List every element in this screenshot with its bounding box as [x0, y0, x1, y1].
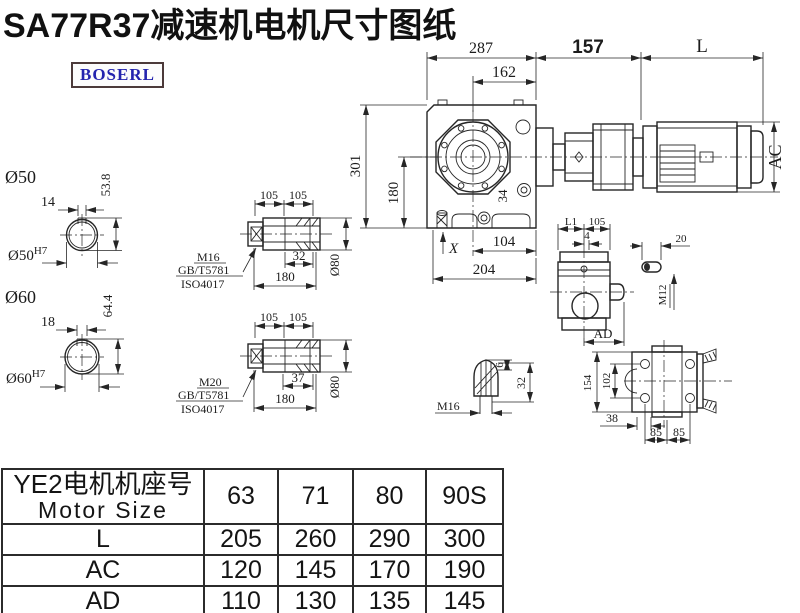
- dim-keywidth-50: 14: [41, 195, 55, 210]
- dim-4: 4: [584, 230, 590, 242]
- hollow-shaft-m16: 105 105 32 180 Ø80 M16 GB/T5781 ISO4017: [176, 188, 352, 291]
- thread-m16-label: M16: [197, 250, 220, 264]
- std-gbt5781-m20: GB/T5781: [178, 388, 229, 402]
- brand-logo: BOSERL: [71, 62, 164, 88]
- dim-85b: 85: [673, 425, 685, 439]
- page-title: SA77R37减速机电机尺寸图纸: [3, 0, 456, 47]
- dim-105a-m20: 105: [260, 310, 278, 324]
- dim-157: 157: [572, 37, 604, 58]
- dim-X: X: [448, 241, 459, 257]
- dim-104: 104: [493, 234, 516, 250]
- dim-dia80-m16: Ø80: [327, 254, 342, 276]
- table-cell: 205: [204, 524, 278, 555]
- dim-180-m16: 180: [275, 269, 295, 284]
- table-col-header: 63: [204, 469, 278, 524]
- key-end: [644, 263, 650, 271]
- dim-180: 180: [386, 182, 402, 205]
- drain-bolt: [437, 211, 447, 229]
- header-en: Motor Size: [3, 498, 203, 522]
- table-header-label: YE2电机机座号 Motor Size: [2, 469, 204, 524]
- table-cell: 120: [204, 555, 278, 586]
- dim-301: 301: [348, 155, 364, 178]
- dim-AD: AD: [594, 326, 613, 341]
- bore-60-section: Ø60 18 64.4 Ø60H7: [5, 287, 124, 392]
- table-cell: 130: [278, 586, 353, 613]
- header-cn: YE2电机机座号: [3, 471, 203, 498]
- bore-50-section: Ø50 14 53.8 Ø50H7: [5, 167, 122, 268]
- motor-size-table: YE2电机机座号 Motor Size 63 71 80 90S L 205 2…: [1, 468, 504, 613]
- table-row: AD 110 130 135 145: [2, 586, 503, 613]
- fit-60H7: Ø60H7: [6, 368, 46, 387]
- table-cell: 290: [353, 524, 426, 555]
- dim-L: L: [696, 36, 708, 57]
- dim-32-plug: 32: [514, 377, 528, 389]
- dim-162: 162: [492, 64, 516, 81]
- dim-keyheight-50: 53.8: [98, 174, 113, 197]
- table-col-header: 90S: [426, 469, 503, 524]
- dim-20-key: 20: [676, 233, 688, 245]
- std-gbt5781-m16: GB/T5781: [178, 263, 229, 277]
- dim-38: 38: [606, 411, 618, 425]
- dim-105b-m16: 105: [289, 188, 307, 202]
- table-cell: 170: [353, 555, 426, 586]
- dim-keywidth-60: 18: [41, 315, 55, 330]
- key-detail: 20 M12: [630, 233, 690, 310]
- row-label: L: [2, 524, 204, 555]
- dim-85a: 85: [650, 425, 662, 439]
- table-col-header: 80: [353, 469, 426, 524]
- dim-keyheight-60: 64.4: [100, 294, 115, 317]
- dim-204: 204: [473, 262, 496, 278]
- row-label: AC: [2, 555, 204, 586]
- table-cell: 145: [278, 555, 353, 586]
- hollow-shaft-m20: 105 105 37 180 Ø80 M20 GB/T5781 ISO4017: [176, 310, 352, 416]
- dim-105b-m20: 105: [289, 310, 307, 324]
- table-cell: 260: [278, 524, 353, 555]
- std-iso4017-m16: ISO4017: [181, 277, 224, 291]
- table-col-header: 71: [278, 469, 353, 524]
- fit-50H7: Ø50H7: [8, 245, 48, 264]
- thread-m20-label: M20: [199, 375, 222, 389]
- gearbox-side-view: L1 105 4 AD: [550, 216, 634, 346]
- table-cell: 300: [426, 524, 503, 555]
- plug-detail: M16 6 32: [435, 360, 534, 414]
- dim-32-m16: 32: [293, 248, 306, 263]
- table-cell: 190: [426, 555, 503, 586]
- dim-102: 102: [601, 373, 613, 390]
- table-cell: 145: [426, 586, 503, 613]
- table-cell: 110: [204, 586, 278, 613]
- std-iso4017-m20: ISO4017: [181, 402, 224, 416]
- bore50-label: Ø50: [5, 167, 36, 187]
- bore60-label: Ø60: [5, 287, 36, 307]
- dim-105-side: 105: [589, 216, 606, 228]
- table-cell: 135: [353, 586, 426, 613]
- dim-105a-m16: 105: [260, 188, 278, 202]
- thread-m12-key: M12: [657, 285, 669, 306]
- dim-180-m20: 180: [275, 391, 295, 406]
- main-assembly-view: 287 162 157 L AC 301 180 34 X 104: [348, 36, 785, 284]
- dim-154: 154: [582, 374, 594, 391]
- dim-37-m20: 37: [292, 370, 306, 385]
- gearbox-bottom-view: 154 102 38 85 85: [582, 340, 732, 444]
- dim-34: 34: [495, 189, 510, 203]
- dim-dia80-m20: Ø80: [327, 376, 342, 398]
- table-row: L 205 260 290 300: [2, 524, 503, 555]
- table-row: AC 120 145 170 190: [2, 555, 503, 586]
- thread-m16-plug: M16: [437, 399, 460, 413]
- dim-287: 287: [469, 40, 493, 57]
- dim-AC: AC: [765, 144, 785, 169]
- row-label: AD: [2, 586, 204, 613]
- dim-L1: L1: [565, 216, 577, 228]
- drawing-sheet: 287 162 157 L AC 301 180 34 X 104: [0, 0, 800, 613]
